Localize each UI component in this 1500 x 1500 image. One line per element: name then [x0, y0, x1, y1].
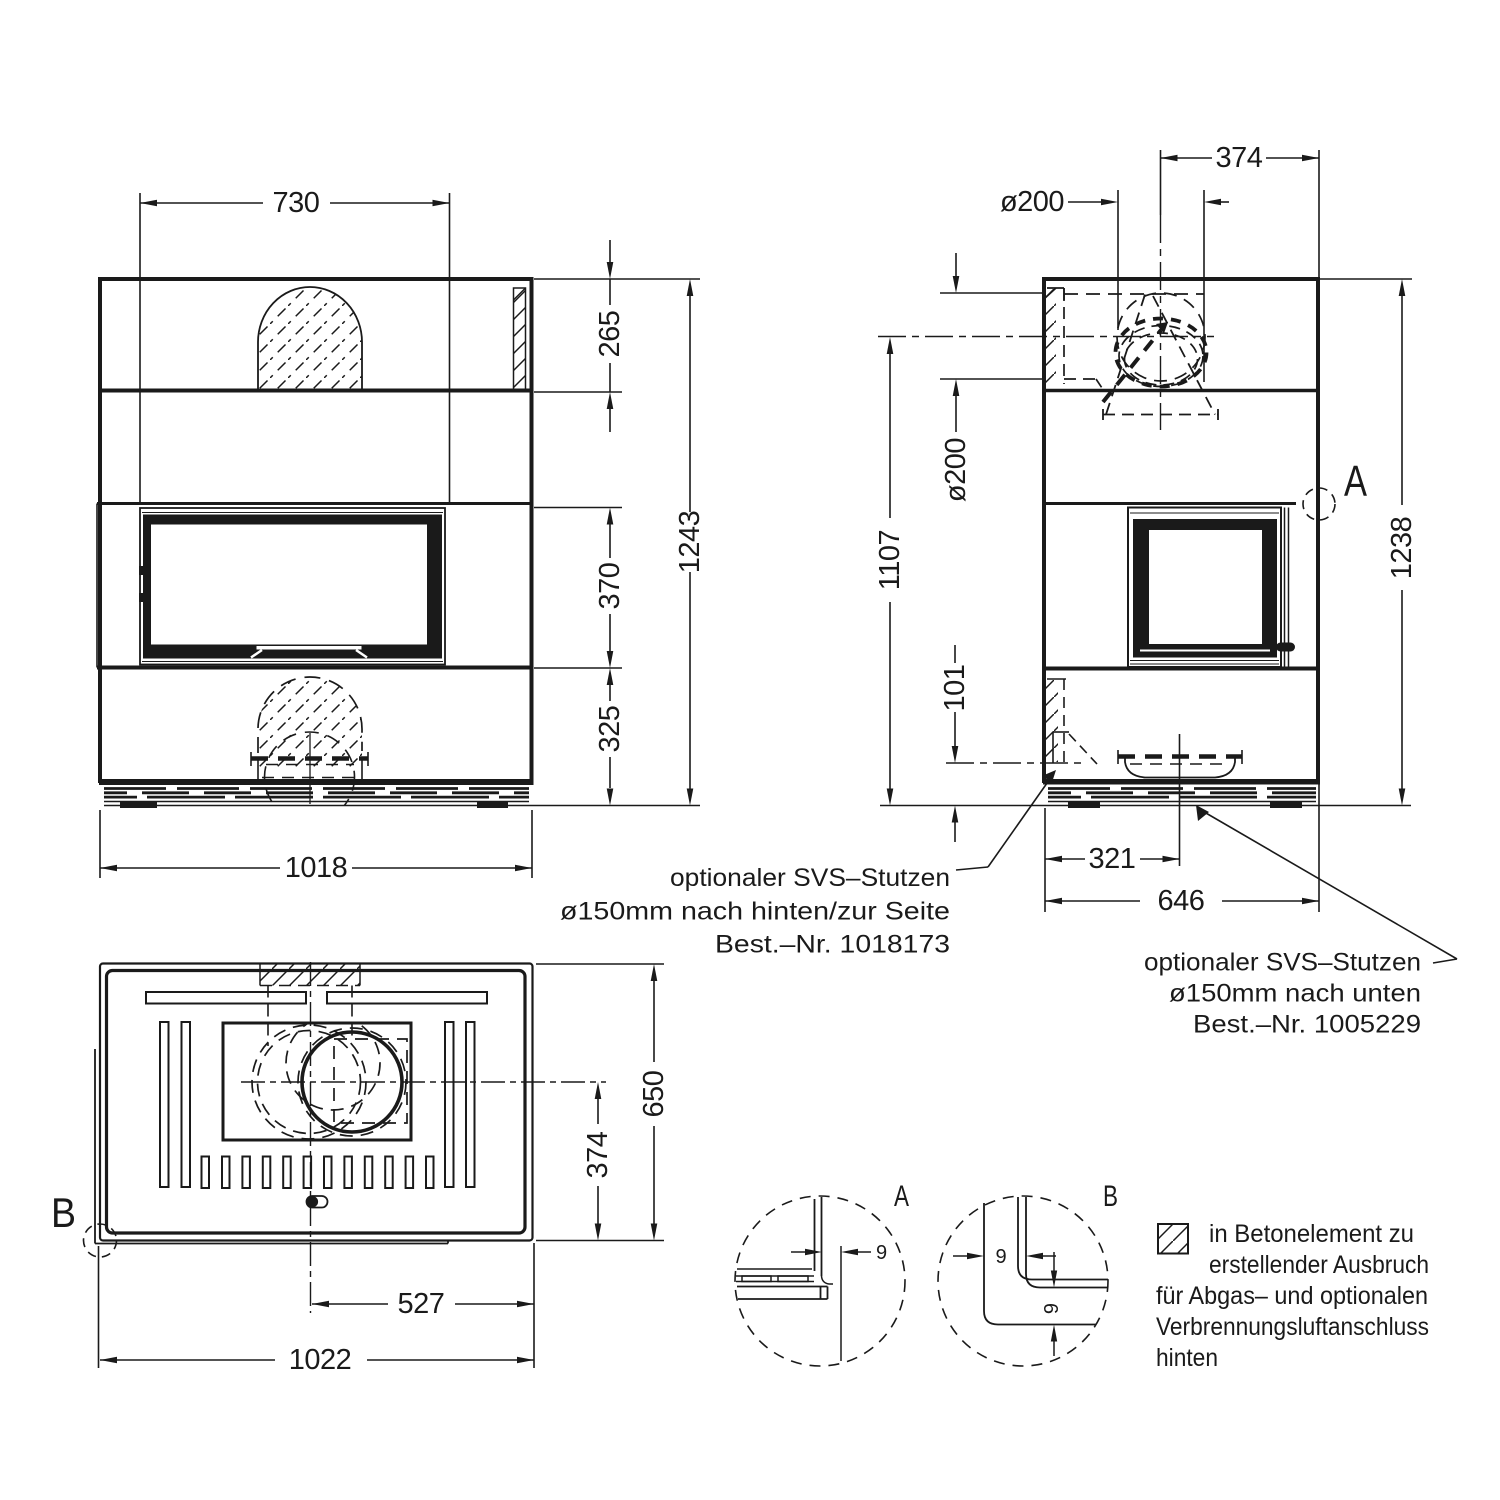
- svg-text:in Betonelement zu: in Betonelement zu: [1209, 1220, 1414, 1248]
- svg-text:A: A: [894, 1180, 909, 1213]
- svg-text:527: 527: [398, 1288, 445, 1320]
- svg-text:ø200: ø200: [1000, 186, 1064, 218]
- svg-text:9: 9: [995, 1246, 1006, 1268]
- svg-text:1107: 1107: [874, 530, 906, 590]
- svg-text:374: 374: [1216, 142, 1263, 174]
- svg-text:ø200: ø200: [940, 438, 972, 502]
- svg-text:265: 265: [594, 311, 626, 358]
- svg-text:hinten: hinten: [1156, 1344, 1218, 1372]
- svg-text:9: 9: [876, 1242, 887, 1264]
- svg-text:9: 9: [1041, 1303, 1063, 1314]
- svg-text:Best.–Nr. 1005229: Best.–Nr. 1005229: [1193, 1011, 1421, 1039]
- svg-text:1238: 1238: [1386, 517, 1418, 580]
- svg-text:ø150mm nach hinten/zur Seite: ø150mm nach hinten/zur Seite: [560, 898, 950, 926]
- svg-text:374: 374: [582, 1131, 614, 1178]
- svg-text:B: B: [1103, 1180, 1118, 1213]
- svg-text:325: 325: [594, 706, 626, 753]
- svg-text:Verbrennungsluftanschluss: Verbrennungsluftanschluss: [1156, 1313, 1429, 1341]
- svg-text:ø150mm nach unten: ø150mm nach unten: [1169, 980, 1421, 1008]
- svg-text:optionaler SVS–Stutzen: optionaler SVS–Stutzen: [1144, 949, 1421, 977]
- svg-text:730: 730: [273, 187, 320, 219]
- svg-text:B: B: [51, 1189, 76, 1236]
- svg-text:1243: 1243: [674, 511, 706, 574]
- svg-text:für Abgas– und optionalen: für Abgas– und optionalen: [1156, 1282, 1428, 1310]
- svg-text:321: 321: [1089, 843, 1136, 875]
- svg-text:1018: 1018: [285, 852, 348, 884]
- svg-text:optionaler SVS–Stutzen: optionaler SVS–Stutzen: [670, 864, 950, 892]
- svg-text:1022: 1022: [289, 1344, 352, 1376]
- svg-text:A: A: [1344, 457, 1368, 506]
- svg-text:646: 646: [1158, 885, 1205, 917]
- svg-text:Best.–Nr. 1018173: Best.–Nr. 1018173: [715, 931, 950, 959]
- svg-text:370: 370: [594, 563, 626, 610]
- svg-text:650: 650: [638, 1071, 670, 1118]
- svg-text:erstellender Ausbruch: erstellender Ausbruch: [1209, 1251, 1429, 1279]
- svg-text:101: 101: [939, 665, 971, 712]
